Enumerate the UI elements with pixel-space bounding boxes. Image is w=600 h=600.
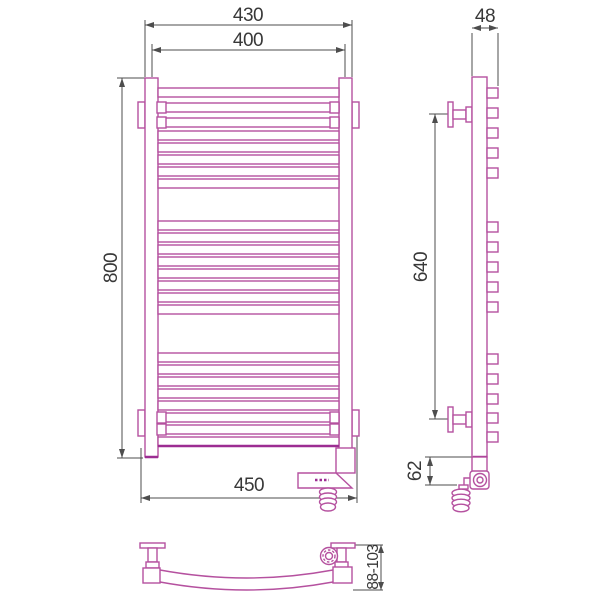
dim-label-48: 48 — [475, 6, 495, 27]
bracket-front-bottom-left — [138, 410, 145, 436]
bracket-front-top-left — [138, 102, 145, 128]
post-side — [472, 77, 487, 457]
dim-label-88-103: 88-103 — [365, 544, 382, 589]
front-rungs — [158, 88, 339, 446]
post-section-right — [333, 567, 352, 583]
power-cable-coil-front — [320, 488, 337, 511]
bracket-side-top — [448, 102, 472, 127]
heater-coil-endview — [321, 548, 338, 565]
side-rung-ends — [487, 88, 498, 442]
accent-lines — [145, 446, 354, 457]
bottom-view — [140, 543, 355, 590]
dim-label-430: 430 — [233, 5, 263, 26]
post-right — [339, 78, 352, 457]
post-left — [145, 78, 158, 457]
dim-label-450: 450 — [234, 475, 264, 496]
cable-flange-side — [459, 485, 468, 489]
heater-stub — [336, 448, 355, 473]
heater-cap-outer — [474, 474, 487, 487]
bracket-front-top-right — [352, 102, 359, 128]
side-view — [448, 77, 498, 512]
collector-side — [472, 457, 487, 472]
bracket-bottomview-left — [140, 543, 165, 568]
dim-label-640: 640 — [411, 252, 432, 282]
dim-label-62: 62 — [405, 461, 426, 481]
bracket-side-bottom — [448, 407, 472, 432]
dimension-62 — [425, 457, 472, 485]
front-view — [138, 78, 359, 511]
power-cable-coil-side — [452, 489, 470, 512]
dim-label-400: 400 — [233, 30, 263, 51]
towel-rail-drawing: 430 400 800 450 48 640 62 88-103 — [0, 0, 600, 600]
curved-rung — [160, 570, 333, 590]
dimension-640 — [429, 114, 451, 419]
post-section-left — [143, 568, 160, 583]
technical-drawing-page: 430 400 800 450 48 640 62 88-103 — [0, 0, 600, 600]
bracket-front-bottom-right — [352, 410, 359, 436]
dim-label-800: 800 — [101, 253, 122, 283]
